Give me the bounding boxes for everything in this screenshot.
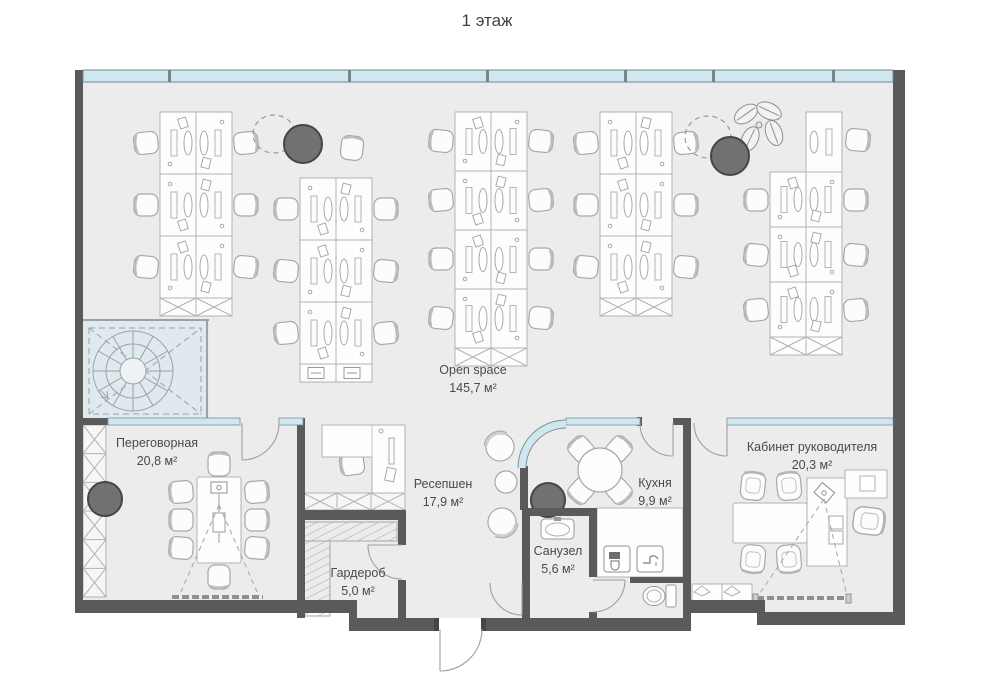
phone-icon [201, 179, 211, 191]
desk-row [455, 112, 527, 171]
desk-end-cabinet [770, 337, 842, 355]
office-chair [843, 243, 869, 267]
phone-icon [496, 154, 506, 166]
desk-row [600, 174, 672, 236]
desk-row [600, 236, 672, 298]
wall-bathroom-top [522, 508, 597, 516]
office-chair [340, 135, 364, 161]
monitor-icon [810, 188, 818, 212]
wall-kitchen-stub [520, 466, 528, 510]
wall-bottom-meeting [75, 600, 357, 613]
phone-icon [496, 294, 506, 306]
label-meeting-name: Переговорная [116, 436, 198, 450]
monitor-icon [640, 193, 648, 217]
office-chair [429, 248, 453, 270]
wall-step [349, 600, 357, 631]
wall-bottom-entrance-left [357, 618, 438, 631]
bookshelf [692, 584, 752, 602]
office-chair [273, 259, 299, 283]
office-chair [674, 194, 698, 216]
office-chair [574, 194, 598, 216]
printer-cabinet [300, 364, 372, 382]
wall-bathroom-right [589, 516, 597, 577]
monitor-icon [640, 131, 648, 155]
wall-bottom-office-left [690, 600, 765, 613]
phone-icon [496, 176, 506, 188]
monitor-icon [479, 130, 487, 154]
office-chair [843, 298, 869, 322]
phone-icon [641, 117, 651, 129]
label-wardrobe-area: 5,0 м² [341, 584, 375, 598]
credenza-item [860, 476, 875, 491]
wall-step [757, 600, 765, 625]
phone-icon [341, 285, 351, 297]
kitchen-table [578, 448, 622, 492]
office-chair [845, 128, 871, 152]
desk-end-cabinet [160, 298, 232, 316]
monitor-icon [479, 307, 487, 331]
monitor-icon [200, 131, 208, 155]
monitor-icon [200, 193, 208, 217]
office-chair [273, 321, 299, 345]
desk-row [455, 171, 527, 230]
office-chair [573, 131, 599, 155]
label-open-space-area: 145,7 м² [449, 381, 497, 395]
office-chair [528, 306, 554, 330]
phone-icon [811, 210, 821, 222]
office-chair [274, 198, 298, 220]
door-jamb [434, 618, 439, 631]
desk-row [300, 178, 372, 240]
label-kitchen-name: Кухня [638, 476, 671, 490]
desk-row [160, 236, 232, 298]
office-chair [844, 189, 868, 211]
office-chair [169, 509, 193, 531]
label-meeting-area: 20,8 м² [137, 454, 178, 468]
office-chair [234, 194, 258, 216]
tap-icon [637, 546, 663, 572]
armchair [740, 544, 766, 574]
desk-row [455, 230, 527, 289]
wall-wardrobe-right [398, 520, 406, 545]
office-chair [168, 480, 194, 504]
label-reception-name: Ресепшен [414, 477, 473, 491]
phone-icon [341, 183, 351, 195]
office-chair [373, 321, 399, 345]
coffee-table [495, 471, 517, 493]
entrance-door [440, 629, 482, 671]
office-chair [133, 131, 159, 155]
desk-row [770, 282, 842, 337]
wall-wc [630, 577, 683, 583]
desk-row [455, 289, 527, 348]
office-chair [573, 255, 599, 279]
monitor-icon [495, 248, 503, 272]
wardrobe-rail [304, 522, 397, 541]
monitor-icon [810, 298, 818, 322]
office-chair [529, 248, 553, 270]
office-meeting-table [733, 503, 807, 543]
toilet-icon [643, 585, 676, 607]
storage-cabinets [303, 493, 405, 510]
desk-row [300, 240, 372, 302]
office-chair [244, 536, 270, 560]
label-bathroom-name: Санузел [534, 544, 583, 558]
monitor-icon [184, 193, 192, 217]
office-chair [528, 188, 554, 212]
office-chair [673, 255, 699, 279]
wall-right [893, 70, 905, 625]
glass-partition-meeting [108, 418, 240, 425]
desk-row [770, 172, 842, 227]
wall-bottom-office-right [765, 612, 893, 625]
phone-icon [201, 281, 211, 293]
monitor-icon [324, 259, 332, 283]
monitor-icon [479, 189, 487, 213]
monitor-icon [640, 255, 648, 279]
monitor-icon [340, 197, 348, 221]
structural-column [284, 125, 322, 163]
office-chair [244, 480, 270, 504]
office-chair [744, 189, 768, 211]
monitor-icon [624, 255, 632, 279]
coffee-machine-icon [604, 546, 630, 572]
office-chair [373, 259, 399, 283]
structural-column [711, 137, 749, 175]
wall-kitchen-north [673, 418, 691, 425]
desk-row [160, 174, 232, 236]
wall-wardrobe-right [398, 580, 406, 618]
wall-meeting-north [83, 418, 108, 425]
monitor-icon [340, 259, 348, 283]
wall-reception-wardrobe [297, 510, 406, 520]
monitor-icon [495, 130, 503, 154]
office-chair [428, 188, 454, 212]
monitor-icon [495, 307, 503, 331]
desk-row [770, 227, 842, 282]
phone-icon [496, 272, 506, 284]
office-chair [528, 129, 554, 153]
office-chair [208, 565, 230, 589]
monitor-icon [794, 243, 802, 267]
office-chair [245, 509, 269, 531]
monitor-icon [624, 193, 632, 217]
phone-icon [201, 157, 211, 169]
monitor-icon [200, 255, 208, 279]
desk-row [160, 112, 232, 174]
wall-stub [589, 612, 597, 618]
page-title: 1 этаж [462, 11, 514, 30]
phone-icon [641, 219, 651, 231]
glass-partition-office [727, 418, 893, 425]
floor-plan-page: 1 этаж [0, 0, 1000, 675]
label-wardrobe-name: Гардероб [331, 566, 386, 580]
wall-kitchen-office [683, 418, 691, 631]
glass-partition-meeting [279, 418, 303, 425]
desk-end-cabinet [600, 298, 672, 316]
sink-icon [541, 517, 574, 539]
label-office-area: 20,3 м² [792, 458, 833, 472]
armchair [776, 471, 803, 501]
monitor-icon [340, 321, 348, 345]
desk-accessory [829, 531, 843, 544]
monitor-icon [624, 131, 632, 155]
glass-partition-kitchen [566, 418, 640, 425]
monitor-icon [324, 197, 332, 221]
office-chair [233, 255, 259, 279]
office-chair [134, 194, 158, 216]
executive-chair [852, 506, 886, 537]
monitor-icon [495, 189, 503, 213]
phone-icon [341, 307, 351, 319]
monitor-icon [389, 438, 394, 464]
desk-row [600, 112, 672, 174]
armchair [776, 544, 802, 574]
office-chair [428, 129, 454, 153]
wall-bathroom-left [522, 508, 530, 618]
label-reception-area: 17,9 м² [423, 495, 464, 509]
office-chair [374, 198, 398, 220]
label-office-name: Кабинет руководителя [747, 440, 877, 454]
office-chair [673, 131, 699, 155]
office-chair [208, 452, 230, 476]
wall-left [75, 70, 83, 613]
phone-icon [811, 232, 821, 244]
label-kitchen-area: 9,9 м² [638, 494, 672, 508]
monitor-icon [794, 188, 802, 212]
monitor-icon [479, 248, 487, 272]
desk-row [300, 302, 372, 364]
wall-bottom-entrance-right [483, 618, 690, 631]
monitor-icon [810, 243, 818, 267]
office-chair [743, 298, 769, 322]
office-chair [168, 536, 194, 560]
armchair [740, 471, 767, 501]
monitor-icon [324, 321, 332, 345]
office-chair [133, 255, 159, 279]
floor-plan: 1 этаж [0, 0, 1000, 675]
monitor-icon [794, 298, 802, 322]
office-chair [428, 306, 454, 330]
monitor-icon [184, 255, 192, 279]
label-bathroom-area: 5,6 м² [541, 562, 575, 576]
desk-single [806, 112, 842, 172]
monitor-icon [184, 131, 192, 155]
structural-column [88, 482, 122, 516]
screen-end [846, 594, 851, 603]
office-chair [743, 243, 769, 267]
phone-icon [811, 320, 821, 332]
label-open-space-name: Open space [439, 363, 506, 377]
phone-icon [641, 241, 651, 253]
office-chair [233, 131, 259, 155]
